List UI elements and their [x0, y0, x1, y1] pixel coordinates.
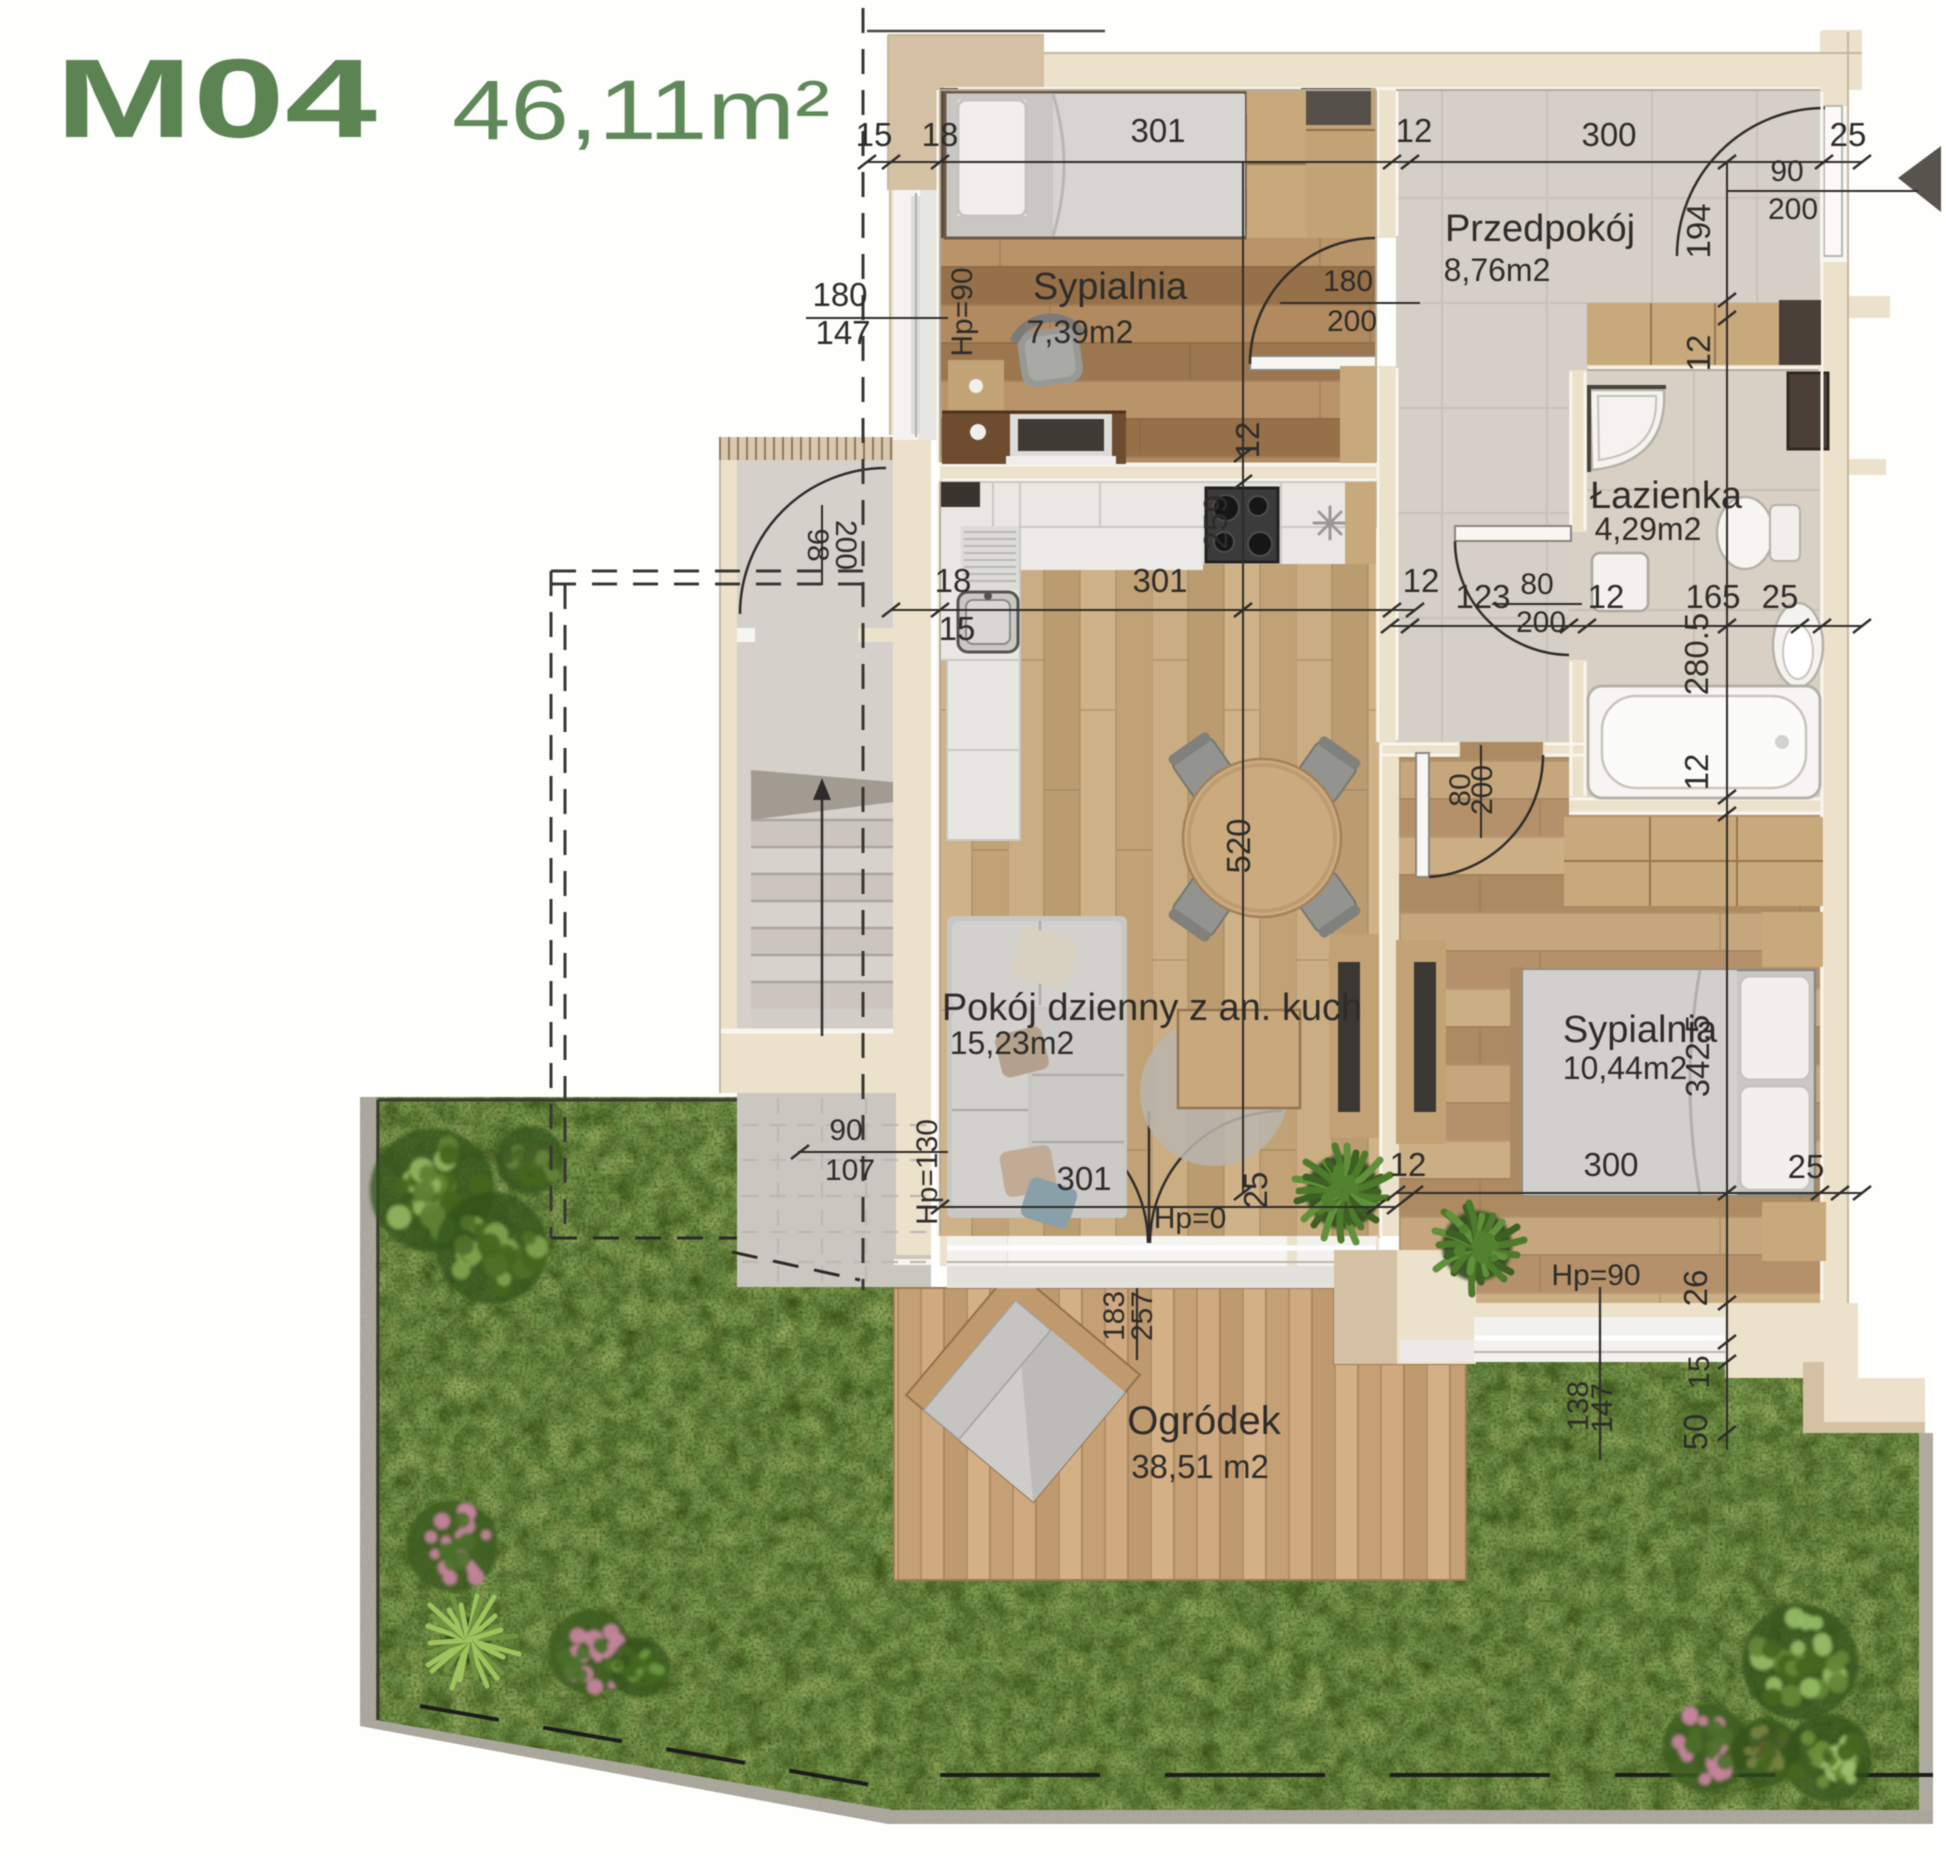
svg-text:180: 180: [812, 276, 867, 313]
svg-text:25: 25: [1788, 1148, 1825, 1185]
svg-text:Pokój dzienny z an. kuch: Pokój dzienny z an. kuch: [942, 987, 1362, 1029]
svg-text:301: 301: [1056, 1160, 1111, 1197]
svg-text:12: 12: [1229, 422, 1266, 459]
svg-text:26: 26: [1677, 1270, 1714, 1307]
svg-text:147: 147: [815, 314, 870, 351]
svg-text:200: 200: [1466, 765, 1499, 815]
svg-text:12: 12: [1680, 335, 1717, 372]
svg-text:25: 25: [1830, 116, 1867, 153]
svg-text:7,39m2: 7,39m2: [1027, 314, 1134, 350]
svg-text:Hp=0: Hp=0: [1154, 1202, 1227, 1235]
svg-text:90: 90: [829, 1114, 862, 1147]
svg-text:25: 25: [1762, 578, 1799, 615]
svg-text:Sypialnia: Sypialnia: [1033, 266, 1188, 308]
svg-text:520: 520: [1220, 818, 1257, 873]
svg-text:259: 259: [1197, 494, 1234, 549]
svg-text:12: 12: [1390, 1146, 1427, 1183]
svg-text:25: 25: [1237, 1172, 1274, 1209]
svg-text:165: 165: [1685, 578, 1740, 615]
svg-text:15,23m2: 15,23m2: [950, 1025, 1075, 1061]
svg-text:80: 80: [1520, 568, 1553, 601]
svg-text:12: 12: [1588, 578, 1625, 615]
svg-text:Hp=130: Hp=130: [911, 1119, 944, 1225]
svg-text:200: 200: [829, 520, 862, 570]
svg-text:18: 18: [922, 116, 959, 153]
svg-text:300: 300: [1581, 116, 1636, 153]
svg-text:107: 107: [825, 1154, 875, 1187]
svg-text:300: 300: [1583, 1146, 1638, 1183]
svg-text:15: 15: [856, 116, 893, 153]
svg-text:12: 12: [1678, 754, 1715, 791]
svg-text:Hp=90: Hp=90: [946, 267, 979, 356]
svg-text:12: 12: [1403, 562, 1440, 599]
svg-text:15: 15: [1683, 1355, 1716, 1388]
svg-text:200: 200: [1768, 193, 1818, 226]
svg-text:180: 180: [1323, 265, 1373, 298]
svg-text:Ogródek: Ogródek: [1127, 1399, 1281, 1443]
svg-text:50: 50: [1677, 1414, 1714, 1451]
svg-text:Przedpokój: Przedpokój: [1445, 208, 1635, 250]
svg-text:257: 257: [1126, 1291, 1159, 1341]
svg-text:147: 147: [1586, 1383, 1619, 1433]
svg-text:46,11m²: 46,11m²: [452, 63, 830, 157]
svg-text:38,51 m2: 38,51 m2: [1131, 1448, 1269, 1485]
svg-text:123: 123: [1455, 578, 1510, 615]
svg-text:8,76m2: 8,76m2: [1444, 252, 1551, 288]
svg-text:194: 194: [1680, 203, 1717, 258]
svg-text:90: 90: [1770, 155, 1803, 188]
svg-text:200: 200: [1327, 305, 1377, 338]
svg-text:15: 15: [939, 610, 976, 647]
svg-text:301: 301: [1132, 562, 1187, 599]
svg-text:18: 18: [935, 562, 972, 599]
svg-text:M04: M04: [55, 36, 377, 161]
svg-text:Hp=90: Hp=90: [1551, 1259, 1640, 1292]
svg-text:10,44m2: 10,44m2: [1563, 1050, 1688, 1086]
svg-text:Sypialnia: Sypialnia: [1563, 1009, 1718, 1051]
svg-text:200: 200: [1516, 606, 1566, 639]
svg-text:4,29m2: 4,29m2: [1595, 511, 1702, 547]
svg-text:301: 301: [1130, 112, 1185, 149]
svg-text:12: 12: [1396, 112, 1433, 149]
